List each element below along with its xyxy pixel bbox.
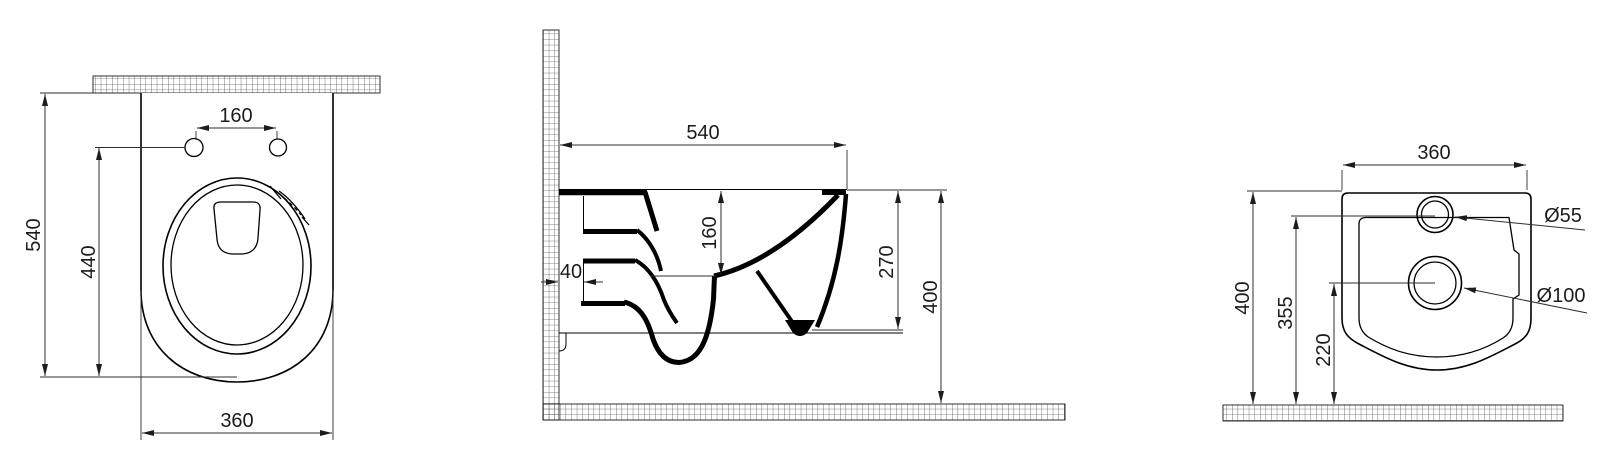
dim-side-outlet-drop: 270 [876, 245, 898, 278]
floor-hatch-rear-view [1223, 405, 1563, 421]
outlet-section [785, 320, 815, 336]
dim-rear-inlet-height: 355 [1275, 296, 1297, 329]
dim-top-hole-spacing: 160 [219, 105, 252, 127]
rear-body-outline [1342, 193, 1531, 370]
dim-top-bowl-depth: 440 [78, 245, 100, 278]
side-view: 540 160 40 270 400 [541, 30, 1065, 420]
dim-rear-height: 400 [1232, 281, 1254, 314]
rear-view: 360 400 355 220 Ø55 Ø100 [1223, 142, 1587, 421]
drawing-svg: 540 440 160 360 [0, 0, 1614, 462]
technical-drawing: 540 440 160 360 [0, 0, 1614, 462]
dim-side-depth: 540 [686, 122, 719, 144]
dim-side-height: 400 [920, 280, 942, 313]
dim-rear-outlet-height: 220 [1313, 333, 1335, 366]
dim-rear-width: 360 [1417, 142, 1450, 164]
wall-hatch-top-view [93, 76, 380, 93]
seat-outer [163, 178, 311, 354]
dim-outlet-diameter: Ø100 [1537, 285, 1586, 307]
dim-side-wall-offset: 40 [560, 261, 582, 283]
dim-top-overall-depth: 540 [23, 218, 45, 251]
dim-top-width: 360 [220, 410, 253, 432]
floor-hatch-side-view [543, 404, 1065, 420]
rear-foot [559, 333, 566, 351]
bowl-inner-arc [714, 195, 838, 276]
dim-side-rim-drop: 160 [699, 216, 721, 249]
dim-inlet-diameter: Ø55 [1544, 205, 1582, 227]
top-view: 540 440 160 360 [23, 76, 380, 440]
wall-hatch-side-view [543, 30, 559, 420]
